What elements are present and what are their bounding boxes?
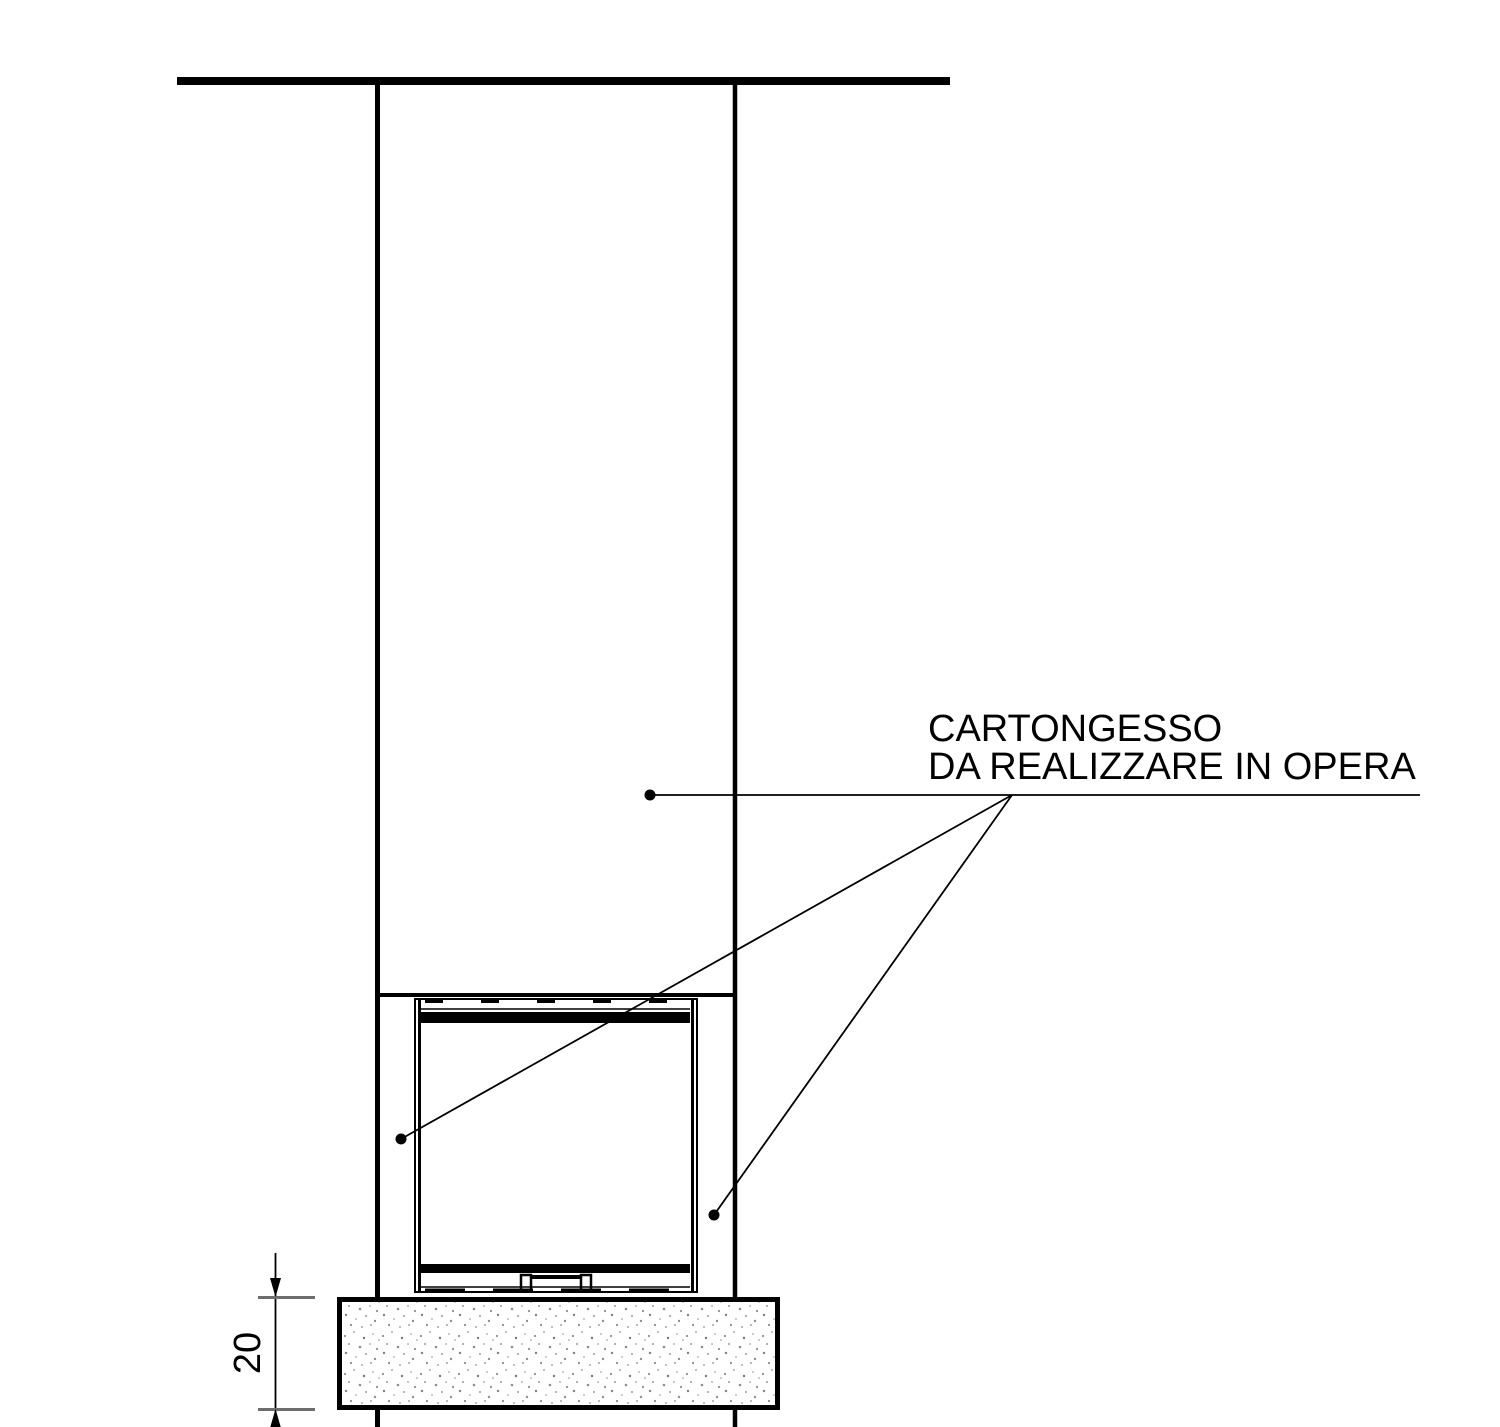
annotation-text-line2: DA REALIZZARE IN OPERA xyxy=(928,746,1416,788)
hearth-base-block xyxy=(340,1300,778,1408)
leader-line-to-left-dot xyxy=(401,795,1012,1139)
insert-bottom-bar xyxy=(421,1264,690,1273)
fireplace-section-drawing: 20 CARTONGESSO DA REALIZZARE IN OPERA xyxy=(0,0,1500,1427)
dimension-value-label: 20 xyxy=(227,1332,269,1374)
fireplace-insert xyxy=(415,999,697,1292)
leader-line-to-right-dot xyxy=(714,795,1012,1215)
annotation-label: CARTONGESSO DA REALIZZARE IN OPERA xyxy=(928,708,1416,788)
leader-dot-left-side xyxy=(396,1134,407,1145)
insert-glass-opening xyxy=(424,1023,687,1264)
insert-top-bar xyxy=(421,1012,690,1023)
leader-dot-right-side xyxy=(709,1210,720,1221)
drawing-canvas: 20 CARTONGESSO DA REALIZZARE IN OPERA xyxy=(0,0,1500,1427)
dimension-arrow-bottom xyxy=(270,1409,281,1427)
leader-dot-chase-front xyxy=(645,790,656,801)
dimension-group: 20 xyxy=(227,1253,315,1427)
dimension-arrow-top xyxy=(270,1278,281,1297)
annotation-text-line1: CARTONGESSO xyxy=(928,708,1222,750)
